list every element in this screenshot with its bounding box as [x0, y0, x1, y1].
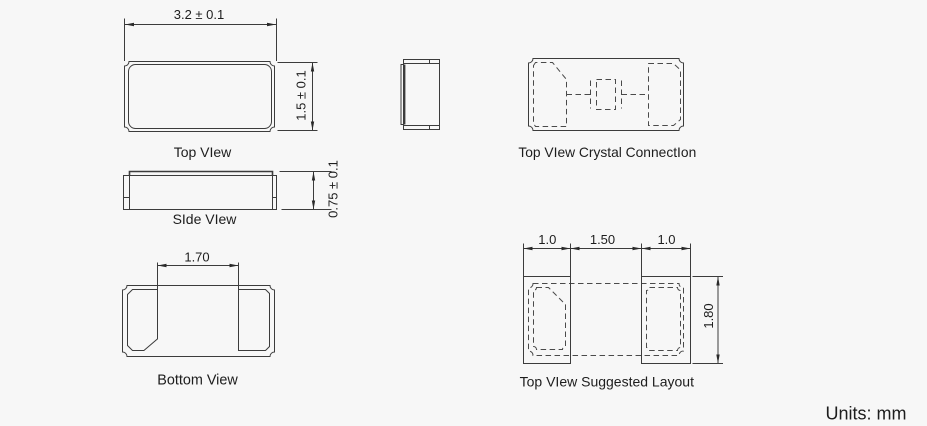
- svg-text:Units: mm: Units: mm: [826, 404, 907, 424]
- svg-text:SIde VIew: SIde VIew: [173, 211, 238, 227]
- svg-text:0.75 ± 0.1: 0.75 ± 0.1: [326, 160, 341, 218]
- svg-text:Top VIew Suggested Layout: Top VIew Suggested Layout: [520, 374, 694, 390]
- svg-text:1.0: 1.0: [538, 232, 556, 247]
- svg-text:Top VIew Crystal ConnectIon: Top VIew Crystal ConnectIon: [518, 145, 696, 160]
- svg-text:Top VIew: Top VIew: [174, 144, 232, 160]
- svg-text:1.50: 1.50: [590, 232, 615, 247]
- svg-text:1.5 ± 0.1: 1.5 ± 0.1: [294, 70, 309, 121]
- svg-text:1.0: 1.0: [657, 232, 675, 247]
- svg-text:Bottom View: Bottom View: [157, 373, 238, 389]
- svg-text:3.2 ± 0.1: 3.2 ± 0.1: [174, 7, 225, 22]
- svg-text:1.70: 1.70: [184, 250, 209, 265]
- svg-text:1.80: 1.80: [701, 303, 716, 328]
